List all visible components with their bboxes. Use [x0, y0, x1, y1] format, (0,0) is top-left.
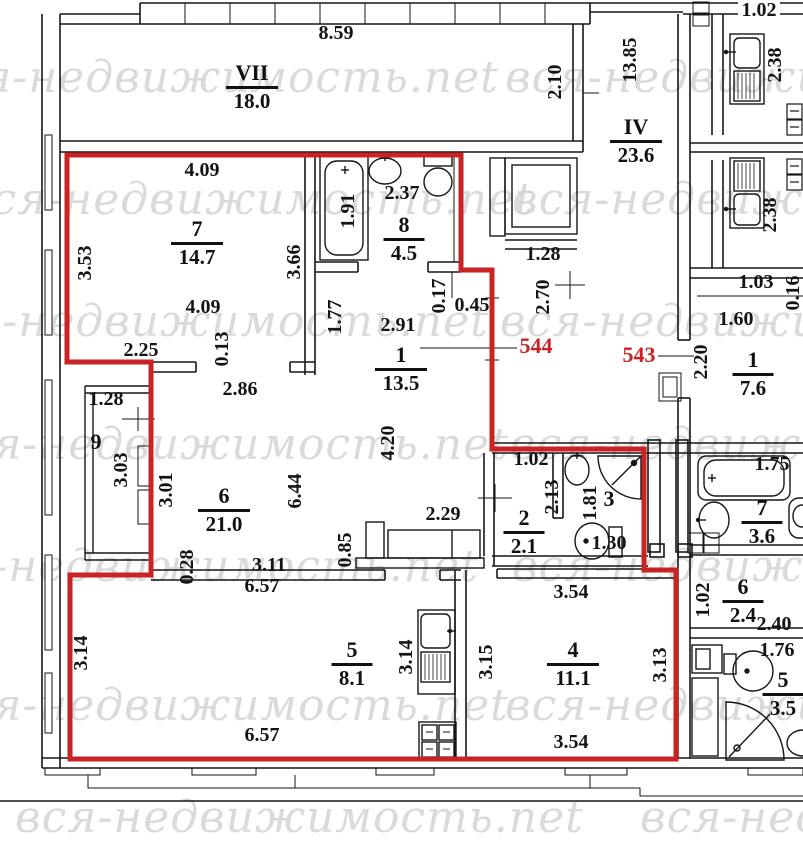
- room-area: 18.0: [226, 91, 278, 112]
- dimension-label: 0.85: [335, 533, 355, 568]
- dimension-label: 2.29: [426, 504, 461, 524]
- room-area: 4.5: [384, 243, 425, 264]
- dimension-label: 0.17: [429, 279, 449, 314]
- dimension-label: 1.02: [514, 449, 549, 469]
- dimension-label: 3.54: [554, 582, 589, 602]
- room-label: 22.1: [504, 507, 545, 557]
- wardrobe: [356, 522, 484, 568]
- dimension-label: 1.75: [755, 454, 790, 474]
- dimension-label: 3.66: [284, 245, 304, 280]
- dimension-label: 1.91: [338, 194, 358, 229]
- room-area: 14.7: [171, 247, 223, 268]
- room-number: IV: [610, 116, 662, 138]
- dimension-label: 8.59: [319, 23, 354, 43]
- corridor-pillars: [648, 440, 692, 557]
- apartment-number-label: 543: [623, 342, 656, 368]
- room-area: 7.6: [733, 378, 774, 399]
- room-label: 714.7: [171, 218, 223, 268]
- room-label: 411.1: [547, 639, 599, 689]
- dimension-label: 2.10: [545, 65, 565, 100]
- dimension-label: 1.28: [526, 244, 561, 264]
- dimension-label: 1.76: [760, 640, 795, 660]
- wc-sink-icon: [565, 452, 589, 485]
- dimension-label: 1.60: [719, 309, 754, 329]
- dimension-label: 3.53: [75, 246, 95, 281]
- dimension-label: 1.02: [742, 0, 777, 20]
- dimension-label: 4.20: [378, 426, 398, 461]
- room-area: 2.4: [723, 605, 764, 626]
- room-label: 3: [604, 488, 615, 510]
- room-label: 73.6: [742, 497, 783, 547]
- dimension-label: 2.86: [223, 379, 258, 399]
- dimension-label: 2.37: [385, 183, 420, 203]
- room-label: 84.5: [384, 214, 425, 264]
- dimension-label: 1.77: [325, 300, 345, 335]
- dimension-label: 1.03: [739, 272, 774, 292]
- dimension-label: 3.03: [111, 453, 131, 488]
- floor-plan: вся-недвижимость.netвся-недвижимость.net…: [0, 0, 803, 859]
- neighbor-toilet-right-icon: [789, 498, 803, 538]
- room-area: 13.5: [375, 373, 427, 394]
- room-area: 11.1: [547, 668, 599, 689]
- dimension-label: 4.09: [186, 297, 221, 317]
- dimension-label: 4.09: [185, 160, 220, 180]
- room-area: 23.6: [610, 145, 662, 166]
- room-number: 6: [198, 485, 250, 507]
- apartment-number-label: 544: [520, 333, 553, 359]
- toilet-icon: [424, 155, 452, 196]
- dimension-label: 1.02: [693, 583, 713, 618]
- floorplan-drawing: [0, 0, 803, 859]
- dimension-label: 3.15: [476, 645, 496, 680]
- room-label: 58.1: [332, 639, 373, 689]
- room-area: 3.5: [763, 698, 803, 719]
- glazing-mullions: [185, 3, 545, 24]
- room-number: 6: [723, 576, 764, 598]
- building-footprint: [0, 768, 803, 801]
- room-label: 621.0: [198, 485, 250, 535]
- room-label: 53.5: [763, 669, 803, 719]
- dimension-label: 6.44: [285, 474, 305, 509]
- room-label: VII18.0: [226, 62, 278, 112]
- dimension-label: 0.45: [455, 295, 490, 315]
- room-label: 62.4: [723, 576, 764, 626]
- dimension-label: 3.13: [650, 648, 670, 683]
- dimension-label: 3.11: [252, 555, 286, 575]
- dimension-label: 6.57: [245, 725, 280, 745]
- dimension-label: 2.38: [765, 48, 785, 83]
- dimension-label: 13.85: [620, 38, 640, 83]
- room-number: 7: [742, 497, 783, 519]
- room-area: 2.1: [504, 536, 545, 557]
- room-area: 3.6: [742, 526, 783, 547]
- sink-icon: [369, 153, 401, 184]
- room-label: 17.6: [733, 349, 774, 399]
- stove-icon: [419, 722, 456, 758]
- dimension-label: 1.28: [89, 389, 124, 409]
- room-number: 5: [763, 669, 803, 691]
- dimension-label: 0.13: [212, 332, 232, 367]
- dimension-label: 2.91: [381, 315, 416, 335]
- room-number: 5: [332, 639, 373, 661]
- dimension-label: 3.01: [156, 473, 176, 508]
- room-number: 7: [171, 218, 223, 240]
- kitchen-sink-icon: [418, 610, 456, 694]
- room-number: 2: [504, 507, 545, 529]
- room-number: VII: [226, 62, 278, 84]
- dimension-label: 2.20: [691, 345, 711, 380]
- dimension-label: 3.14: [71, 636, 91, 671]
- dimension-label: 6.57: [245, 576, 280, 596]
- dimension-label: 2.38: [760, 198, 780, 233]
- dimension-label: 0.28: [177, 550, 197, 585]
- neighbor-stove-icons: [787, 104, 802, 190]
- room-area: 21.0: [198, 514, 250, 535]
- room-number: 9: [91, 431, 102, 453]
- dimension-label: 2.25: [124, 340, 159, 360]
- room-label: 9: [91, 431, 102, 453]
- room-number: 8: [384, 214, 425, 236]
- room-number: 3: [604, 488, 615, 510]
- room-number: 1: [375, 344, 427, 366]
- neighbor-window: [490, 158, 577, 249]
- room-number: 4: [547, 639, 599, 661]
- dimension-label: 3.54: [554, 732, 589, 752]
- dimension-label: 2.70: [533, 280, 553, 315]
- room-label: IV23.6: [610, 116, 662, 166]
- dimension-label: 3.14: [396, 640, 416, 675]
- dimension-label: 1.81: [580, 486, 600, 521]
- dimension-label: 2.13: [542, 480, 562, 515]
- room-area: 8.1: [332, 668, 373, 689]
- dimension-label: 0.16: [783, 276, 803, 311]
- dimension-label: 1.30: [592, 533, 627, 553]
- room-number: 1: [733, 349, 774, 371]
- room-label: 113.5: [375, 344, 427, 394]
- left-wall-windows: [45, 135, 52, 733]
